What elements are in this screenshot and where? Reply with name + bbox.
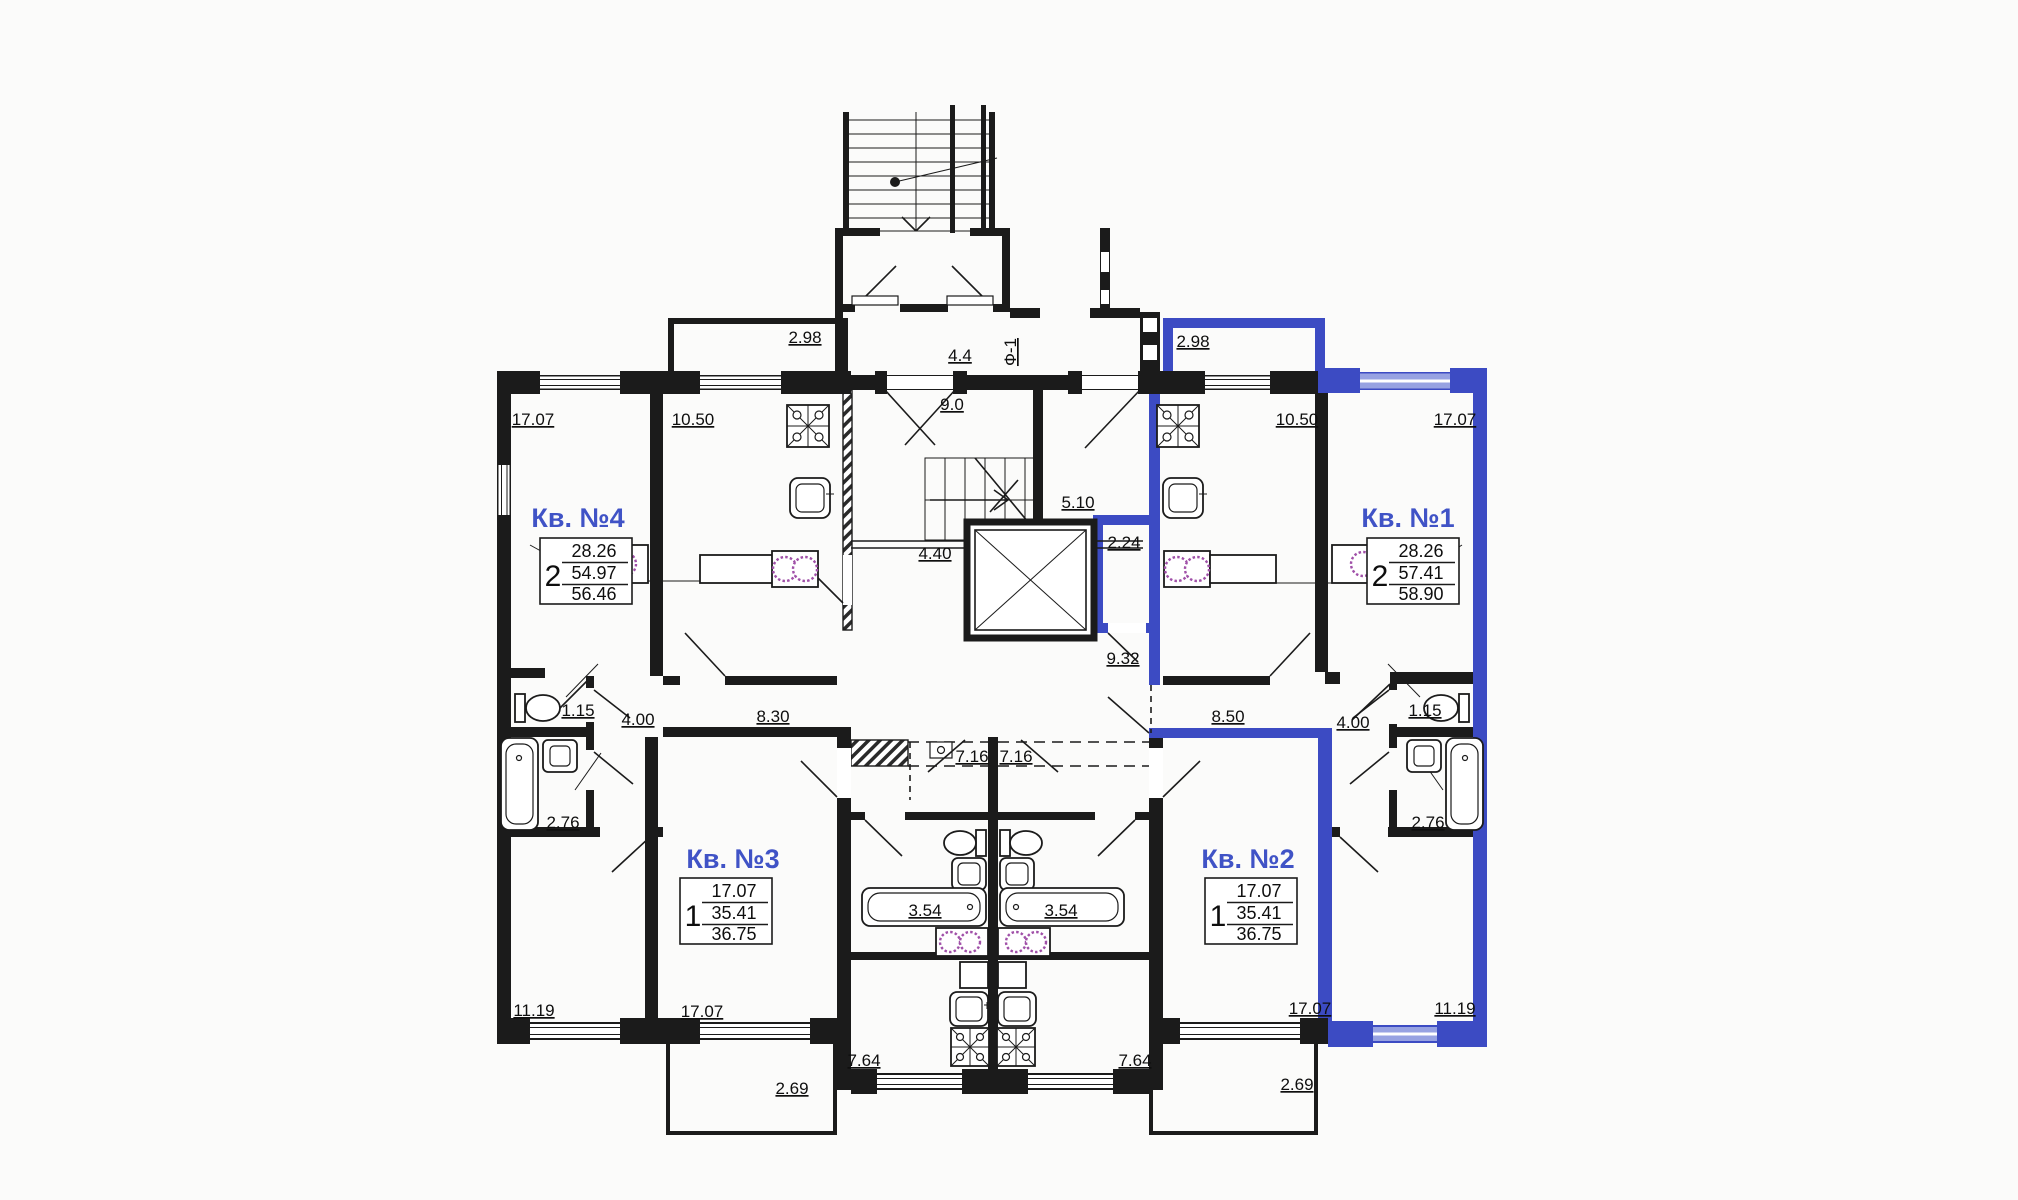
- dim-label: 1.15: [561, 701, 594, 720]
- dim-label: 10.50: [1276, 410, 1319, 429]
- stove-icon: [1157, 405, 1199, 447]
- stove-icon: [997, 1028, 1035, 1066]
- washer-counter: [700, 551, 818, 587]
- dim-label: 11.19: [1434, 999, 1475, 1018]
- apartment-name: Кв. №1: [1361, 503, 1454, 533]
- toilet-icon: [515, 694, 560, 722]
- balcony-bottom-left: [666, 1040, 837, 1135]
- dim-label: 2.24: [1107, 533, 1140, 552]
- area-total: 56.46: [571, 584, 616, 604]
- area-zhil: 17.07: [1236, 881, 1281, 901]
- kitchen-sink-icon: [1163, 478, 1207, 518]
- dim-label: 7.16: [955, 747, 988, 766]
- sink-icon: [1407, 740, 1441, 772]
- dim-label: 4.4: [948, 346, 972, 365]
- area-total: 58.90: [1398, 584, 1443, 604]
- room-count: 2: [1372, 560, 1389, 593]
- apartment-4-info: Кв. №4 2 28.26 54.97 56.46: [531, 503, 632, 604]
- dim-label: 9.32: [1106, 649, 1139, 668]
- area-zhil: 17.07: [711, 881, 756, 901]
- area-living: 35.41: [1236, 903, 1281, 923]
- toilet-icon: [944, 830, 986, 856]
- dim-label: 5.10: [1061, 493, 1094, 512]
- room-count: 1: [685, 900, 702, 933]
- dim-label: 1.15: [1408, 701, 1441, 720]
- dim-label: 17.07: [1434, 410, 1477, 429]
- sink-icon: [543, 740, 577, 772]
- area-living: 57.41: [1398, 563, 1443, 583]
- dim-label: 8.50: [1211, 707, 1244, 726]
- area-living: 54.97: [571, 563, 616, 583]
- area-zhil: 28.26: [571, 541, 616, 561]
- dim-label: 4.00: [621, 710, 654, 729]
- toilet-icon: [1000, 830, 1042, 856]
- washer-counter: [1164, 551, 1276, 587]
- dim-label: 17.07: [681, 1002, 724, 1021]
- apartment-name: Кв. №4: [531, 503, 624, 533]
- apartment-1-info: Кв. №1 2 28.26 57.41 58.90: [1361, 503, 1459, 604]
- dim-label: 3.54: [1044, 901, 1077, 920]
- dim-label: 17.07: [512, 410, 555, 429]
- apartment-2-info: Кв. №2 1 17.07 35.41 36.75: [1201, 844, 1297, 944]
- washer-counter: [936, 928, 988, 956]
- elevator-shaft: [967, 522, 1094, 638]
- kitchen-sink-icon: [992, 992, 1036, 1026]
- dim-label: 17.07: [1289, 999, 1332, 1018]
- dim-label: 4.00: [1336, 713, 1369, 732]
- sink-icon: [952, 858, 986, 890]
- bathtub-icon: [501, 738, 538, 830]
- dim-label: 8.30: [756, 707, 789, 726]
- shaft-hatched-walls: [843, 390, 908, 766]
- washer-counter: [998, 928, 1050, 956]
- dim-label: 4.40: [918, 544, 951, 563]
- vestibule-walls: [835, 228, 1160, 390]
- bathtub-icon: [1446, 738, 1483, 830]
- stove-icon: [951, 1028, 989, 1066]
- dim-label: 2.69: [1280, 1075, 1313, 1094]
- area-living: 35.41: [711, 903, 756, 923]
- area-zhil: 28.26: [1398, 541, 1443, 561]
- area-total: 36.75: [711, 924, 756, 944]
- dim-label: 7.16: [999, 747, 1032, 766]
- apartment-name: Кв. №2: [1201, 844, 1294, 874]
- dim-label: 3.54: [908, 901, 941, 920]
- floor-plan-drawing: 17.07 10.50 2.98 4.4 Ф-1 9.0 2.98 10.50 …: [0, 0, 2018, 1200]
- area-total: 36.75: [1236, 924, 1281, 944]
- dim-label: 7.64: [1118, 1051, 1151, 1070]
- sink-icon: [1000, 858, 1034, 890]
- kitchen-sink-icon: [790, 478, 834, 518]
- room-count: 2: [545, 560, 562, 593]
- kitchen-sink-icon: [950, 992, 990, 1026]
- dim-label: 9.0: [940, 395, 964, 414]
- dim-label: 11.19: [513, 1001, 554, 1020]
- apartment-name: Кв. №3: [686, 844, 779, 874]
- entrance-stair: [843, 105, 997, 234]
- dim-label: 7.64: [847, 1051, 880, 1070]
- dim-label: 2.76: [1411, 813, 1444, 832]
- dim-label: 2.69: [775, 1079, 808, 1098]
- dim-label: 2.98: [1176, 332, 1209, 351]
- dim-label: Ф-1: [1001, 338, 1020, 366]
- stove-icon: [787, 405, 829, 447]
- dim-label: 2.98: [788, 328, 821, 347]
- dim-label: 2.76: [546, 813, 579, 832]
- floor-plan-page: 17.07 10.50 2.98 4.4 Ф-1 9.0 2.98 10.50 …: [0, 0, 2018, 1200]
- room-count: 1: [1210, 900, 1227, 933]
- apartment-3-info: Кв. №3 1 17.07 35.41 36.75: [680, 844, 780, 944]
- dim-label: 10.50: [672, 410, 715, 429]
